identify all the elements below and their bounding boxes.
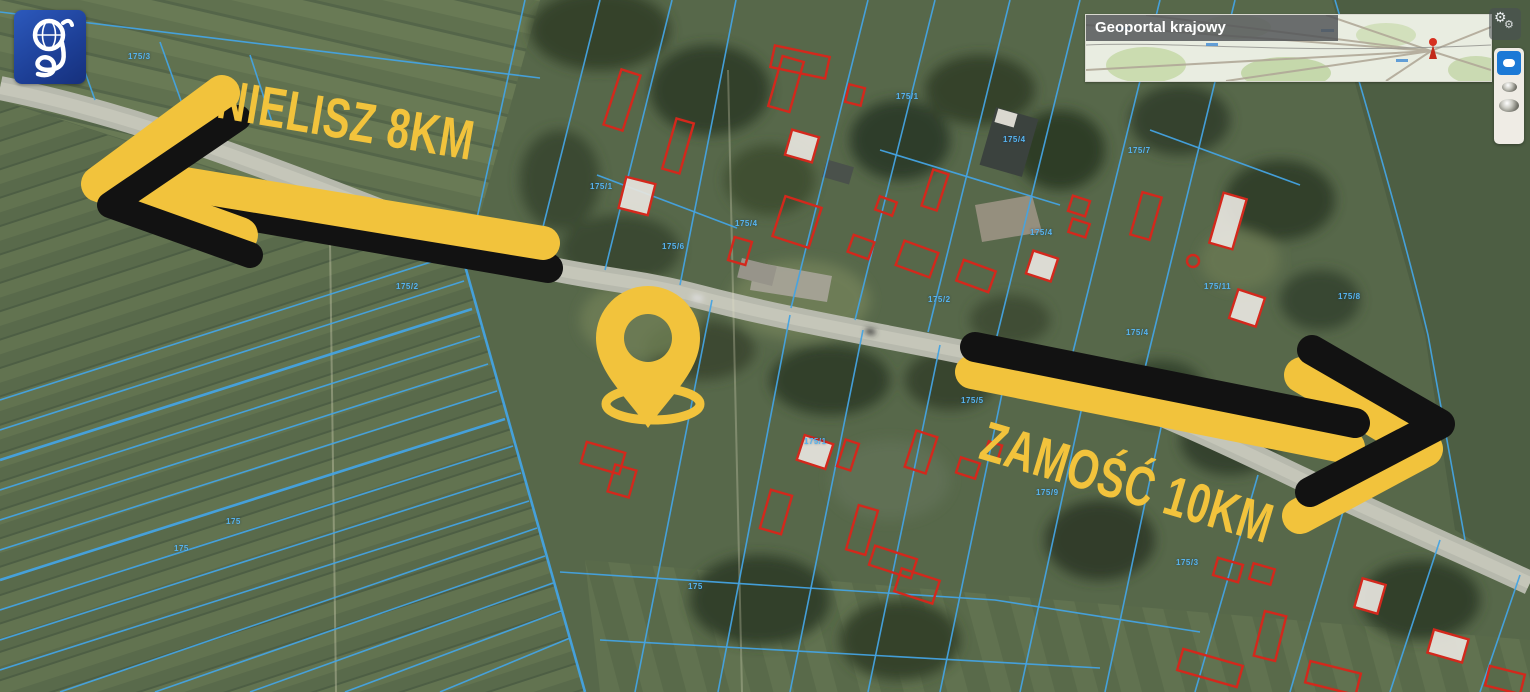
parcel-number-label: 175/11: [1204, 282, 1231, 291]
parcel-number-label: 175/1: [590, 182, 613, 191]
parcel-number-label: 175/1: [896, 92, 919, 101]
parcel-number-label: 175: [174, 544, 189, 553]
parcel-number-label: 175: [688, 582, 703, 591]
active-tool-button[interactable]: [1497, 51, 1521, 75]
parcel-number-label: 175/6: [662, 242, 685, 251]
parcel-number-label: 175/3: [1176, 558, 1199, 567]
red-marker-icon: [1424, 37, 1442, 61]
parcel-number-label: 175/2: [928, 295, 951, 304]
parcel-number-label: 175/5: [961, 396, 984, 405]
map-tools-button[interactable]: ⚙ ⚙: [1489, 8, 1521, 40]
geoportal-g-icon: [14, 10, 86, 84]
active-dot-icon: [1503, 59, 1515, 67]
minimap-title: Geoportal krajowy: [1086, 15, 1338, 41]
parcel-number-label: 175/8: [1338, 292, 1361, 301]
map-control-panel: [1494, 48, 1524, 144]
map-canvas[interactable]: 175/3175/2175/1175/4175/6175/1175/4175/7…: [0, 0, 1530, 692]
gear-icon: ⚙: [1504, 18, 1514, 31]
parcel-number-label: 175/7: [1128, 146, 1151, 155]
overview-minimap[interactable]: Geoportal krajowy: [1085, 14, 1492, 82]
parcel-number-label: 175: [226, 517, 241, 526]
parcel-number-label: 175/2: [396, 282, 419, 291]
parcel-number-label: 175/1: [804, 437, 827, 446]
parcel-number-label: 175/3: [128, 52, 151, 61]
parcel-number-label: 175/4: [1126, 328, 1149, 337]
geoportal-logo[interactable]: [14, 10, 86, 84]
parcel-number-label: 175/4: [1003, 135, 1026, 144]
sphere-large-button[interactable]: [1499, 99, 1519, 112]
parcel-number-label: 175/4: [1030, 228, 1053, 237]
sphere-small-button[interactable]: [1502, 82, 1517, 92]
parcel-number-label: 175/4: [735, 219, 758, 228]
